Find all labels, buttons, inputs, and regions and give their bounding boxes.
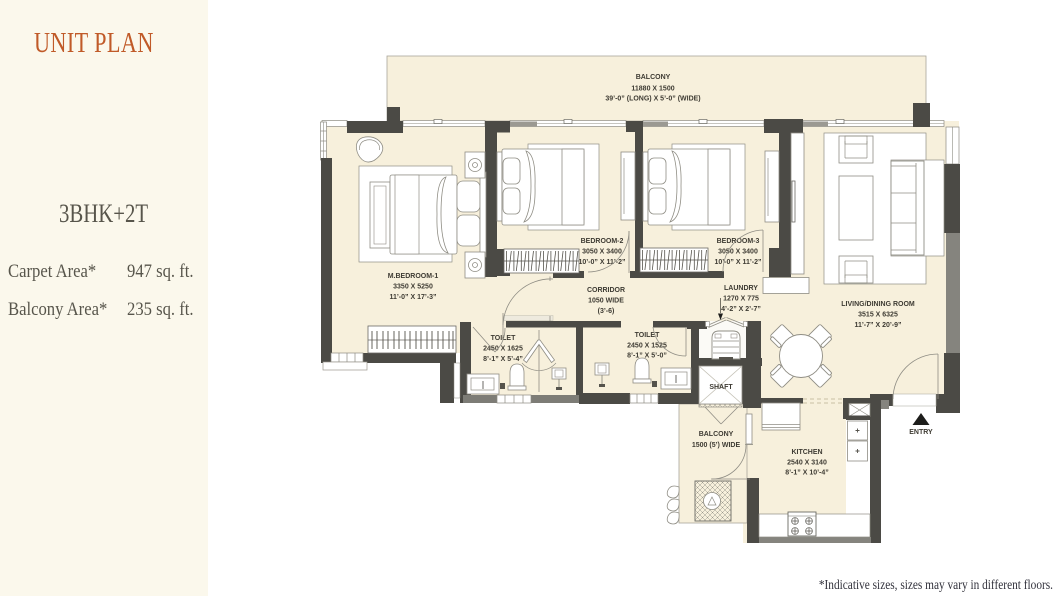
svg-text:1500 (5’) WIDE: 1500 (5’) WIDE — [692, 442, 741, 449]
svg-text:2450 X 1625: 2450 X 1625 — [483, 346, 523, 353]
svg-text:BALCONY: BALCONY — [699, 431, 734, 438]
svg-text:8’-1” X 5’-0”: 8’-1” X 5’-0” — [627, 353, 667, 360]
svg-text:1050 WIDE: 1050 WIDE — [588, 298, 624, 305]
svg-text:8’-1” X 5’-4”: 8’-1” X 5’-4” — [483, 356, 523, 363]
svg-text:3050 X 3400: 3050 X 3400 — [718, 249, 758, 256]
svg-text:39’-0” (LONG) X 5’-0” (WIDE): 39’-0” (LONG) X 5’-0” (WIDE) — [605, 96, 700, 103]
svg-text:2540 X 3140: 2540 X 3140 — [787, 460, 827, 467]
svg-text:8’-1” X 10’-4”: 8’-1” X 10’-4” — [785, 470, 829, 477]
svg-text:(3’-6): (3’-6) — [598, 308, 615, 315]
svg-text:Carpet Area*: Carpet Area* — [8, 260, 96, 281]
svg-text:BEDROOM-2: BEDROOM-2 — [581, 238, 624, 245]
svg-text:LAUNDRY: LAUNDRY — [724, 285, 758, 292]
svg-text:3350 X 5250: 3350 X 5250 — [393, 284, 433, 291]
svg-text:1270 X 775: 1270 X 775 — [723, 296, 759, 303]
svg-text:SHAFT: SHAFT — [709, 384, 733, 391]
svg-text:UNIT PLAN: UNIT PLAN — [34, 26, 154, 58]
svg-text:11’-7” X 20’-9”: 11’-7” X 20’-9” — [854, 322, 901, 329]
svg-text:11880 X 1500: 11880 X 1500 — [631, 86, 674, 93]
svg-text:KITCHEN: KITCHEN — [791, 449, 822, 456]
svg-text:ENTRY: ENTRY — [909, 429, 933, 436]
svg-text:*Indicative sizes, sizes may v: *Indicative sizes, sizes may vary in dif… — [819, 577, 1053, 592]
svg-text:M.BEDROOM-1: M.BEDROOM-1 — [388, 273, 439, 280]
svg-text:11’-0” X 17’-3”: 11’-0” X 17’-3” — [389, 294, 436, 301]
svg-text:LIVING/DINING ROOM: LIVING/DINING ROOM — [841, 301, 915, 308]
svg-text:10’-0” X 11’-2”: 10’-0” X 11’-2” — [578, 259, 625, 266]
svg-text:BALCONY: BALCONY — [636, 74, 671, 81]
svg-text:Balcony Area*: Balcony Area* — [8, 298, 107, 319]
svg-text:3050 X 3400: 3050 X 3400 — [582, 249, 622, 256]
svg-text:947 sq. ft.: 947 sq. ft. — [127, 260, 194, 281]
svg-text:CORRIDOR: CORRIDOR — [587, 287, 625, 294]
svg-text:2450 X 1525: 2450 X 1525 — [627, 343, 667, 350]
svg-text:3515 X 6325: 3515 X 6325 — [858, 312, 898, 319]
svg-text:10’-0” X 11’-2”: 10’-0” X 11’-2” — [714, 259, 761, 266]
svg-text:235 sq. ft.: 235 sq. ft. — [127, 298, 194, 319]
svg-text:3BHK+2T: 3BHK+2T — [59, 200, 148, 229]
svg-text:4’-2” X 2’-7”: 4’-2” X 2’-7” — [721, 306, 761, 313]
